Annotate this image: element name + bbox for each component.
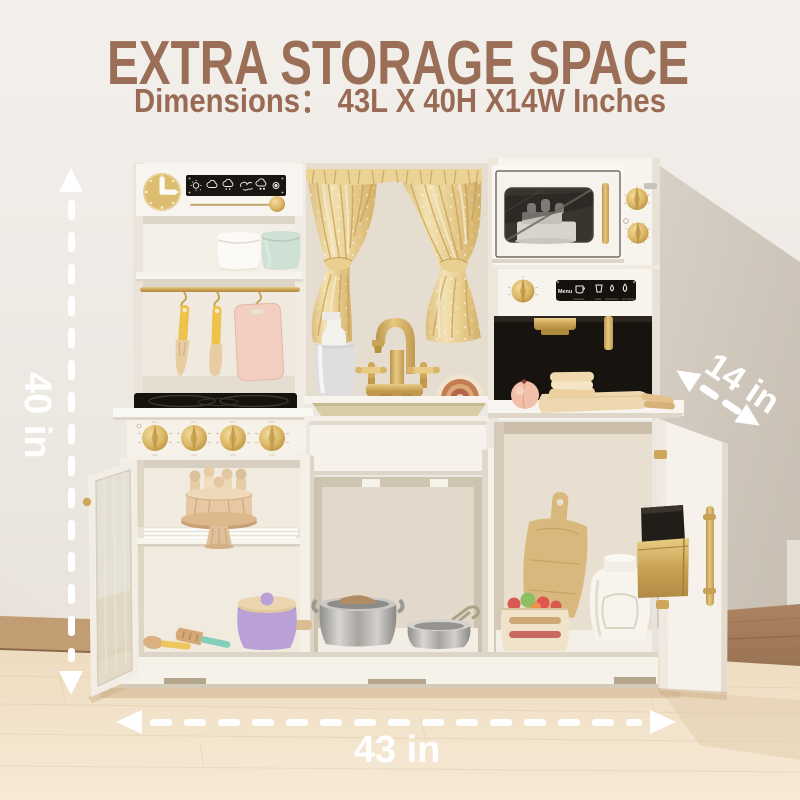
svg-text:Heat/Ice: Heat/Ice (573, 297, 585, 301)
svg-text:Menu: Menu (558, 289, 572, 295)
svg-text:MIN: MIN (230, 453, 236, 457)
svg-text:MAX: MAX (269, 420, 276, 424)
svg-text:Hot Wate: Hot Wate (622, 297, 635, 301)
svg-text:MIN: MIN (269, 453, 275, 457)
svg-text:Dimensions： 43L X 40H X14W In: Dimensions： 43L X 40H X14W Inches (134, 82, 666, 119)
svg-text:MAX: MAX (191, 420, 198, 424)
svg-text:Drip/Save: Drip/Save (605, 297, 619, 301)
svg-text:MIN: MIN (191, 453, 197, 457)
svg-text:40 in: 40 in (16, 372, 58, 459)
svg-text:43 in: 43 in (354, 729, 441, 771)
svg-text:MAX: MAX (152, 420, 159, 424)
svg-text:MIN: MIN (152, 453, 158, 457)
svg-text:Latte: Latte (595, 297, 602, 301)
svg-text:MAX: MAX (230, 420, 237, 424)
